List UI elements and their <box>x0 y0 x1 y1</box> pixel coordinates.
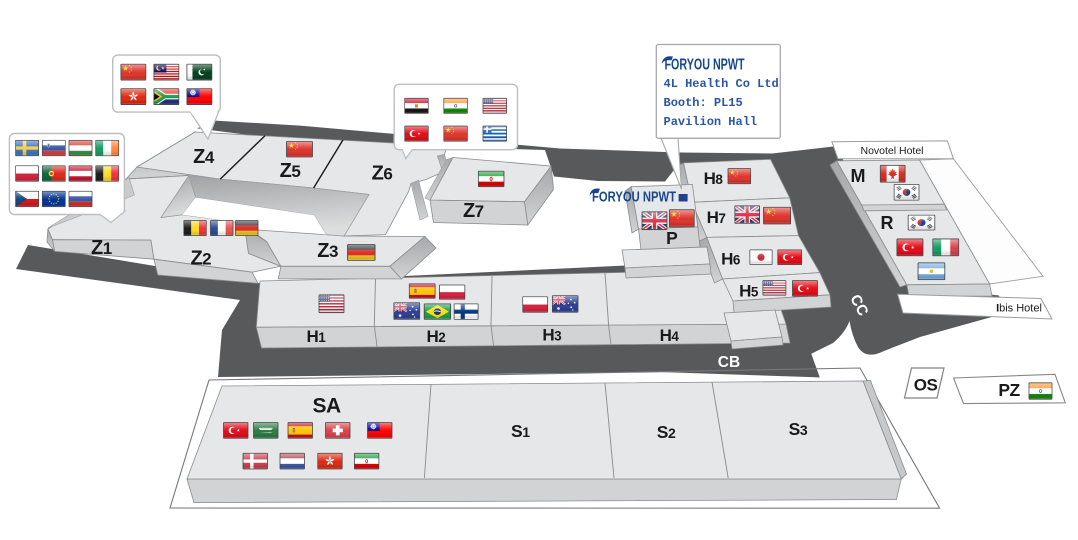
svg-text:P: P <box>666 228 678 248</box>
svg-text:H6: H6 <box>721 250 741 269</box>
svg-text:Booth: PL15: Booth: PL15 <box>664 96 743 110</box>
svg-text:PZ: PZ <box>998 380 1020 400</box>
svg-text:Z6: Z6 <box>372 163 393 185</box>
svg-text:R: R <box>881 213 894 233</box>
svg-text:H8: H8 <box>704 169 724 188</box>
svg-text:S2: S2 <box>657 422 676 442</box>
svg-text:OS: OS <box>914 376 938 395</box>
svg-text:Pavilion Hall: Pavilion Hall <box>664 115 758 129</box>
svg-text:FORYOU NPWT: FORYOU NPWT <box>592 189 676 206</box>
svg-text:H2: H2 <box>427 327 446 346</box>
svg-text:Z3: Z3 <box>317 240 338 262</box>
svg-text:Z5: Z5 <box>280 160 301 182</box>
svg-text:H7: H7 <box>707 208 726 227</box>
svg-text:SA: SA <box>313 395 342 418</box>
svg-text:H4: H4 <box>660 326 680 345</box>
svg-text:Z1: Z1 <box>91 237 112 259</box>
svg-text:Ibis Hotel: Ibis Hotel <box>996 303 1042 315</box>
svg-text:Z7: Z7 <box>463 200 484 222</box>
svg-text:H5: H5 <box>739 282 759 301</box>
svg-text:CB: CB <box>718 354 740 371</box>
svg-text:Z2: Z2 <box>190 247 211 269</box>
svg-text:Z4: Z4 <box>193 146 215 168</box>
svg-text:S1: S1 <box>511 421 530 441</box>
svg-text:Novotel Hotel: Novotel Hotel <box>860 145 923 157</box>
svg-text:H1: H1 <box>307 327 327 346</box>
svg-text:S3: S3 <box>789 419 808 439</box>
svg-text:FORYOU NPWT: FORYOU NPWT <box>665 57 745 74</box>
svg-text:H3: H3 <box>542 326 562 345</box>
svg-text:4L Health Co Ltd: 4L Health Co Ltd <box>664 77 779 91</box>
svg-text:M: M <box>851 166 866 186</box>
